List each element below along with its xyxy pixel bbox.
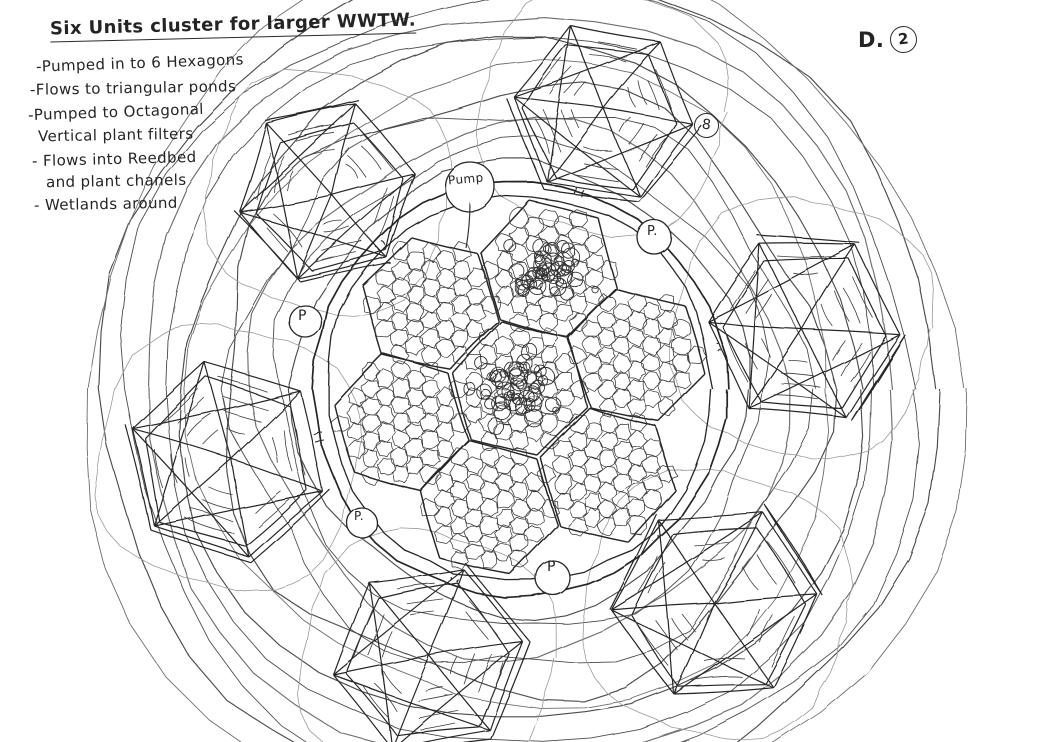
sketch-page: Six Units cluster for larger WWTW. -Pump… <box>0 0 1051 742</box>
pump-point-label: P <box>547 559 556 575</box>
note-line: Vertical plant filters <box>38 125 194 146</box>
note-line: -Flows to triangular ponds <box>30 77 237 99</box>
pump-point-label: P <box>298 308 307 324</box>
central-cluster <box>290 162 728 598</box>
pump-point-label: P. <box>647 224 658 239</box>
corner-letter: D. <box>858 28 884 52</box>
pump-point-label: P. <box>354 509 364 523</box>
note-line: and plant chanels <box>46 171 187 191</box>
note-line: - Wetlands around <box>34 194 178 215</box>
page-number-badge: 2 <box>889 25 919 55</box>
wetland-ripples <box>87 0 967 742</box>
page-corner-label: D. 2 <box>858 26 917 53</box>
sketch-lines <box>87 0 967 742</box>
